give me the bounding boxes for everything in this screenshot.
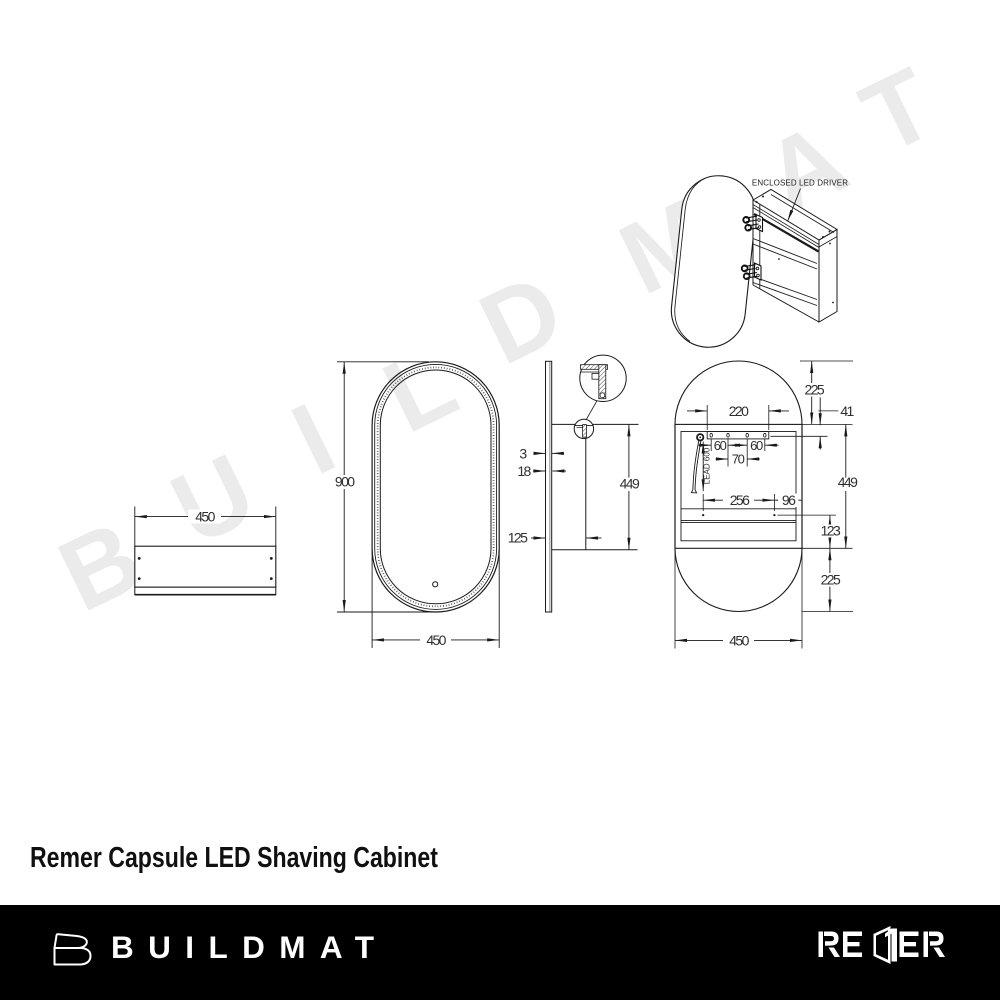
svg-text:449: 449 [838,474,858,490]
svg-text:450: 450 [195,509,215,525]
svg-text:450: 450 [426,632,446,648]
svg-text:3: 3 [519,445,527,461]
svg-text:900: 900 [335,473,355,489]
svg-text:LEAD 600: LEAD 600 [703,447,712,484]
svg-text:70: 70 [732,451,745,466]
svg-text:60: 60 [750,438,763,453]
svg-text:18: 18 [517,463,531,479]
svg-text:225: 225 [821,571,841,587]
svg-text:123: 123 [821,523,841,539]
svg-text:449: 449 [620,476,640,492]
svg-text:256: 256 [730,492,750,508]
svg-text:96: 96 [782,492,796,508]
svg-text:125: 125 [508,530,528,546]
svg-text:450: 450 [729,633,749,649]
svg-text:225: 225 [805,382,825,398]
svg-text:ENCLOSED LED DRIVER: ENCLOSED LED DRIVER [752,179,848,188]
svg-text:60: 60 [714,438,727,453]
svg-text:220: 220 [729,403,749,419]
svg-text:41: 41 [840,403,854,419]
